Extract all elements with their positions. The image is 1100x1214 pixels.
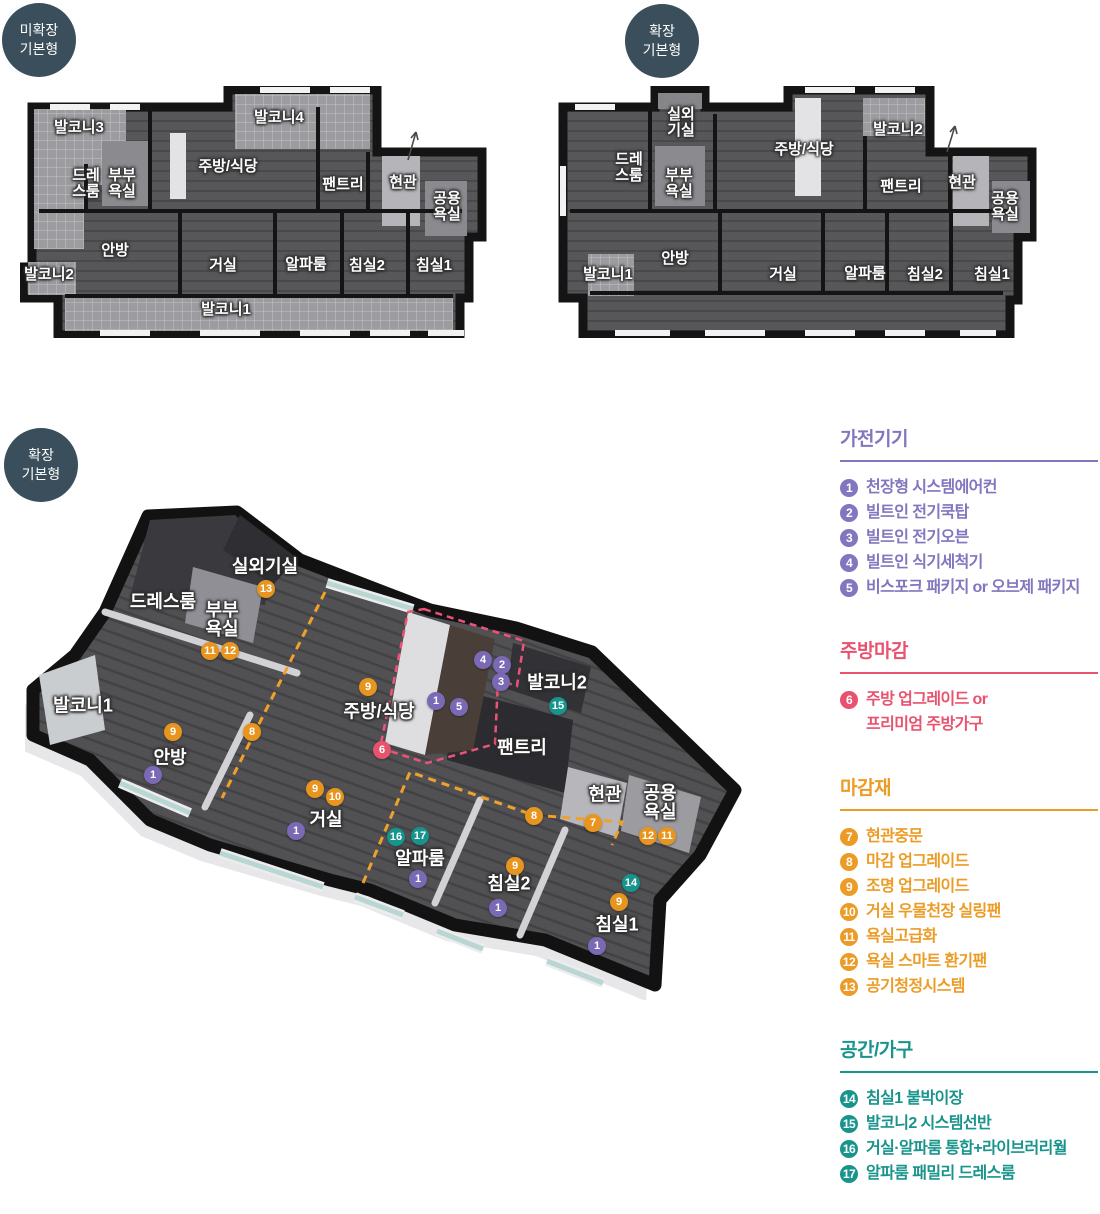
legend-item-label: 침실1 붙박이장 [866, 1086, 963, 1111]
option-marker-16: 16 [387, 828, 405, 846]
room-label: 거실 [309, 811, 342, 830]
room-label: 현관 [948, 175, 976, 191]
legend-item-3: 3빌트인 전기오븐 [840, 525, 1098, 550]
option-marker-14: 14 [622, 874, 640, 892]
room-label: 실외기실 [232, 558, 298, 577]
legend-rule [840, 460, 1098, 462]
room-label: 침실2 [487, 875, 530, 894]
legend-item-label: 빌트인 식기세척기 [866, 550, 983, 575]
plan-3d-labels: 실외기실드레스룸부부 욕실발코니1안방주방/식당발코니2팬트리현관공용 욕실거실… [25, 505, 745, 1000]
legend-item-number: 1 [840, 479, 858, 497]
option-marker-8: 8 [243, 723, 261, 741]
room-label: 부부 욕실 [665, 168, 693, 200]
room-label: 팬트리 [880, 179, 921, 195]
legend-item-9: 9조명 업그레이드 [840, 874, 1098, 899]
legend-item-label: 주방 업그레이드 or 프리미엄 주방가구 [866, 687, 987, 737]
legend-item-8: 8마감 업그레이드 [840, 849, 1098, 874]
legend-item-label: 조명 업그레이드 [866, 874, 969, 899]
legend-item-number: 7 [840, 828, 858, 846]
legend-item-label: 빌트인 전기오븐 [866, 525, 969, 550]
legend-item-13: 13공기청정시스템 [840, 974, 1098, 999]
room-label: 부부 욕실 [108, 168, 136, 200]
room-label: 실외 기실 [667, 107, 695, 139]
room-label: 거실 [769, 267, 797, 283]
legend-item-14: 14침실1 붙박이장 [840, 1086, 1098, 1111]
legend-item-number: 16 [840, 1140, 858, 1158]
plan-3d-type-badge: 확장 기본형 [4, 428, 78, 502]
legend-item-number: 10 [840, 903, 858, 921]
room-label: 안방 [153, 749, 186, 768]
legend-item-label: 거실 우물천장 실링팬 [866, 899, 1001, 924]
option-marker-17: 17 [411, 827, 429, 845]
room-label: 드레 스룸 [72, 168, 100, 200]
option-marker-13: 13 [257, 580, 275, 598]
room-label: 침실1 [974, 267, 1010, 283]
legend-item-4: 4빌트인 식기세척기 [840, 550, 1098, 575]
option-marker-12: 12 [639, 827, 657, 845]
legend-item-label: 발코니2 시스템선반 [866, 1111, 991, 1136]
legend-item-16: 16거실·알파룸 통합+라이브러리월 [840, 1136, 1098, 1161]
legend-item-number: 15 [840, 1115, 858, 1133]
legend-item-17: 17알파룸 패밀리 드레스룸 [840, 1161, 1098, 1186]
room-label: 공용 욕실 [433, 191, 461, 223]
legend-item-number: 3 [840, 529, 858, 547]
room-label: 주방/식당 [198, 159, 257, 175]
floorplan-infographic: { "colors": { "purple":"#7a69b4", "pink"… [0, 0, 1100, 1214]
plan-b-badge-line2: 기본형 [643, 41, 682, 60]
option-marker-9: 9 [164, 723, 182, 741]
room-label: 주방/식당 [774, 142, 833, 158]
legend-item-label: 마감 업그레이드 [866, 849, 969, 874]
legend-item-label: 비스포크 패키지 or 오브제 패키지 [866, 575, 1080, 600]
room-label: 현관 [389, 175, 417, 191]
option-marker-7: 7 [584, 814, 602, 832]
option-marker-1: 1 [409, 870, 427, 888]
option-marker-9: 9 [610, 893, 628, 911]
option-marker-1: 1 [144, 766, 162, 784]
legend-item-15: 15발코니2 시스템선반 [840, 1111, 1098, 1136]
room-label: 침실2 [349, 258, 385, 274]
legend-item-number: 13 [840, 978, 858, 996]
legend-rule [840, 809, 1098, 811]
room-label: 알파룸 [844, 266, 885, 282]
legend-section-title: 주방마감 [840, 636, 1098, 663]
room-label: 발코니2 [24, 267, 74, 283]
room-label: 발코니2 [527, 674, 587, 693]
room-label: 침실1 [595, 916, 638, 935]
legend-section-2: 주방마감6주방 업그레이드 or 프리미엄 주방가구 [840, 636, 1098, 737]
legend-item-7: 7현관중문 [840, 824, 1098, 849]
room-label: 침실1 [416, 258, 452, 274]
plan-b-badge-line1: 확장 [649, 22, 675, 41]
plan-b-labels: 실외 기실발코니2드레 스룸부부 욕실주방/식당팬트리현관공용 욕실안방거실알파… [555, 86, 1045, 338]
legend-item-number: 17 [840, 1165, 858, 1183]
legend-section-1: 가전기기1천장형 시스템에어컨2빌트인 전기쿡탑3빌트인 전기오븐4빌트인 식기… [840, 424, 1098, 600]
legend-item-6: 6주방 업그레이드 or 프리미엄 주방가구 [840, 687, 1098, 737]
legend-item-number: 2 [840, 504, 858, 522]
option-marker-3: 3 [492, 673, 510, 691]
plan-3d-badge-line1: 확장 [28, 446, 54, 465]
room-label: 발코니1 [53, 697, 113, 716]
option-marker-1: 1 [427, 692, 445, 710]
room-label: 드레스룸 [130, 593, 196, 612]
room-label: 발코니1 [583, 267, 633, 283]
option-marker-6: 6 [373, 741, 391, 759]
plan-a-badge-line1: 미확장 [20, 21, 59, 40]
option-marker-12: 12 [221, 642, 239, 660]
legend-section-4: 공간/가구14침실1 붙박이장15발코니2 시스템선반16거실·알파룸 통합+라… [840, 1035, 1098, 1186]
room-label: 발코니3 [54, 120, 104, 136]
legend-item-11: 11욕실고급화 [840, 924, 1098, 949]
legend-item-label: 천장형 시스템에어컨 [866, 475, 997, 500]
option-marker-4: 4 [474, 651, 492, 669]
room-label: 알파룸 [285, 257, 326, 273]
legend-item-2: 2빌트인 전기쿡탑 [840, 500, 1098, 525]
room-label: 발코니4 [254, 110, 304, 126]
option-marker-9: 9 [359, 678, 377, 696]
room-label: 공용 욕실 [991, 191, 1019, 223]
plan-a-type-badge: 미확장 기본형 [2, 3, 76, 77]
legend-section-title: 가전기기 [840, 424, 1098, 451]
legend-item-number: 5 [840, 579, 858, 597]
room-label: 안방 [101, 243, 129, 259]
legend-rule [840, 1071, 1098, 1073]
legend-section-title: 마감재 [840, 773, 1098, 800]
legend-item-number: 8 [840, 853, 858, 871]
plan-a-labels: 발코니3발코니4주방/식당드레 스룸부부 욕실팬트리현관공용 욕실안방거실알파룸… [20, 86, 490, 338]
legend-item-label: 거실·알파룸 통합+라이브러리월 [866, 1136, 1067, 1161]
room-label: 현관 [588, 786, 621, 805]
option-marker-8: 8 [525, 807, 543, 825]
plan-3d-expanded: 실외기실드레스룸부부 욕실발코니1안방주방/식당발코니2팬트리현관공용 욕실거실… [25, 505, 745, 1000]
room-label: 드레 스룸 [615, 152, 643, 184]
option-marker-9: 9 [506, 857, 524, 875]
legend: 가전기기1천장형 시스템에어컨2빌트인 전기쿡탑3빌트인 전기오븐4빌트인 식기… [840, 424, 1098, 1186]
option-marker-1: 1 [489, 899, 507, 917]
option-marker-1: 1 [588, 937, 606, 955]
legend-item-label: 공기청정시스템 [866, 974, 965, 999]
legend-item-label: 빌트인 전기쿡탑 [866, 500, 969, 525]
room-label: 팬트리 [322, 177, 363, 193]
option-marker-2: 2 [493, 656, 511, 674]
legend-section-title: 공간/가구 [840, 1035, 1098, 1062]
legend-item-1: 1천장형 시스템에어컨 [840, 475, 1098, 500]
option-marker-5: 5 [450, 698, 468, 716]
legend-rule [840, 672, 1098, 674]
legend-item-number: 4 [840, 554, 858, 572]
room-label: 부부 욕실 [205, 601, 238, 639]
legend-item-number: 14 [840, 1090, 858, 1108]
room-label: 알파룸 [395, 850, 445, 869]
room-label: 팬트리 [497, 739, 547, 758]
option-marker-1: 1 [287, 822, 305, 840]
room-label: 안방 [661, 251, 689, 267]
room-label: 발코니2 [873, 122, 923, 138]
plan-a-unexpanded: 발코니3발코니4주방/식당드레 스룸부부 욕실팬트리현관공용 욕실안방거실알파룸… [20, 86, 490, 338]
option-marker-11: 11 [201, 642, 219, 660]
plan-b-type-badge: 확장 기본형 [625, 4, 699, 78]
legend-item-label: 욕실고급화 [866, 924, 937, 949]
legend-item-12: 12욕실 스마트 환기팬 [840, 949, 1098, 974]
legend-section-3: 마감재7현관중문8마감 업그레이드9조명 업그레이드10거실 우물천장 실링팬1… [840, 773, 1098, 999]
option-marker-11: 11 [658, 827, 676, 845]
room-label: 발코니1 [201, 302, 251, 318]
legend-item-label: 알파룸 패밀리 드레스룸 [866, 1161, 1015, 1186]
option-marker-10: 10 [326, 788, 344, 806]
legend-item-label: 욕실 스마트 환기팬 [866, 949, 987, 974]
legend-item-number: 12 [840, 953, 858, 971]
legend-item-5: 5비스포크 패키지 or 오브제 패키지 [840, 575, 1098, 600]
legend-item-number: 11 [840, 928, 858, 946]
room-label: 주방/식당 [343, 703, 414, 722]
room-label: 침실2 [907, 267, 943, 283]
legend-item-number: 6 [840, 691, 858, 709]
plan-a-badge-line2: 기본형 [20, 40, 59, 59]
legend-item-label: 현관중문 [866, 824, 922, 849]
plan-b-expanded: 실외 기실발코니2드레 스룸부부 욕실주방/식당팬트리현관공용 욕실안방거실알파… [555, 86, 1045, 338]
plan-3d-badge-line2: 기본형 [22, 465, 61, 484]
room-label: 공용 욕실 [643, 784, 676, 822]
option-marker-9: 9 [306, 780, 324, 798]
legend-item-number: 9 [840, 878, 858, 896]
option-marker-15: 15 [549, 697, 567, 715]
legend-item-10: 10거실 우물천장 실링팬 [840, 899, 1098, 924]
room-label: 거실 [209, 258, 237, 274]
